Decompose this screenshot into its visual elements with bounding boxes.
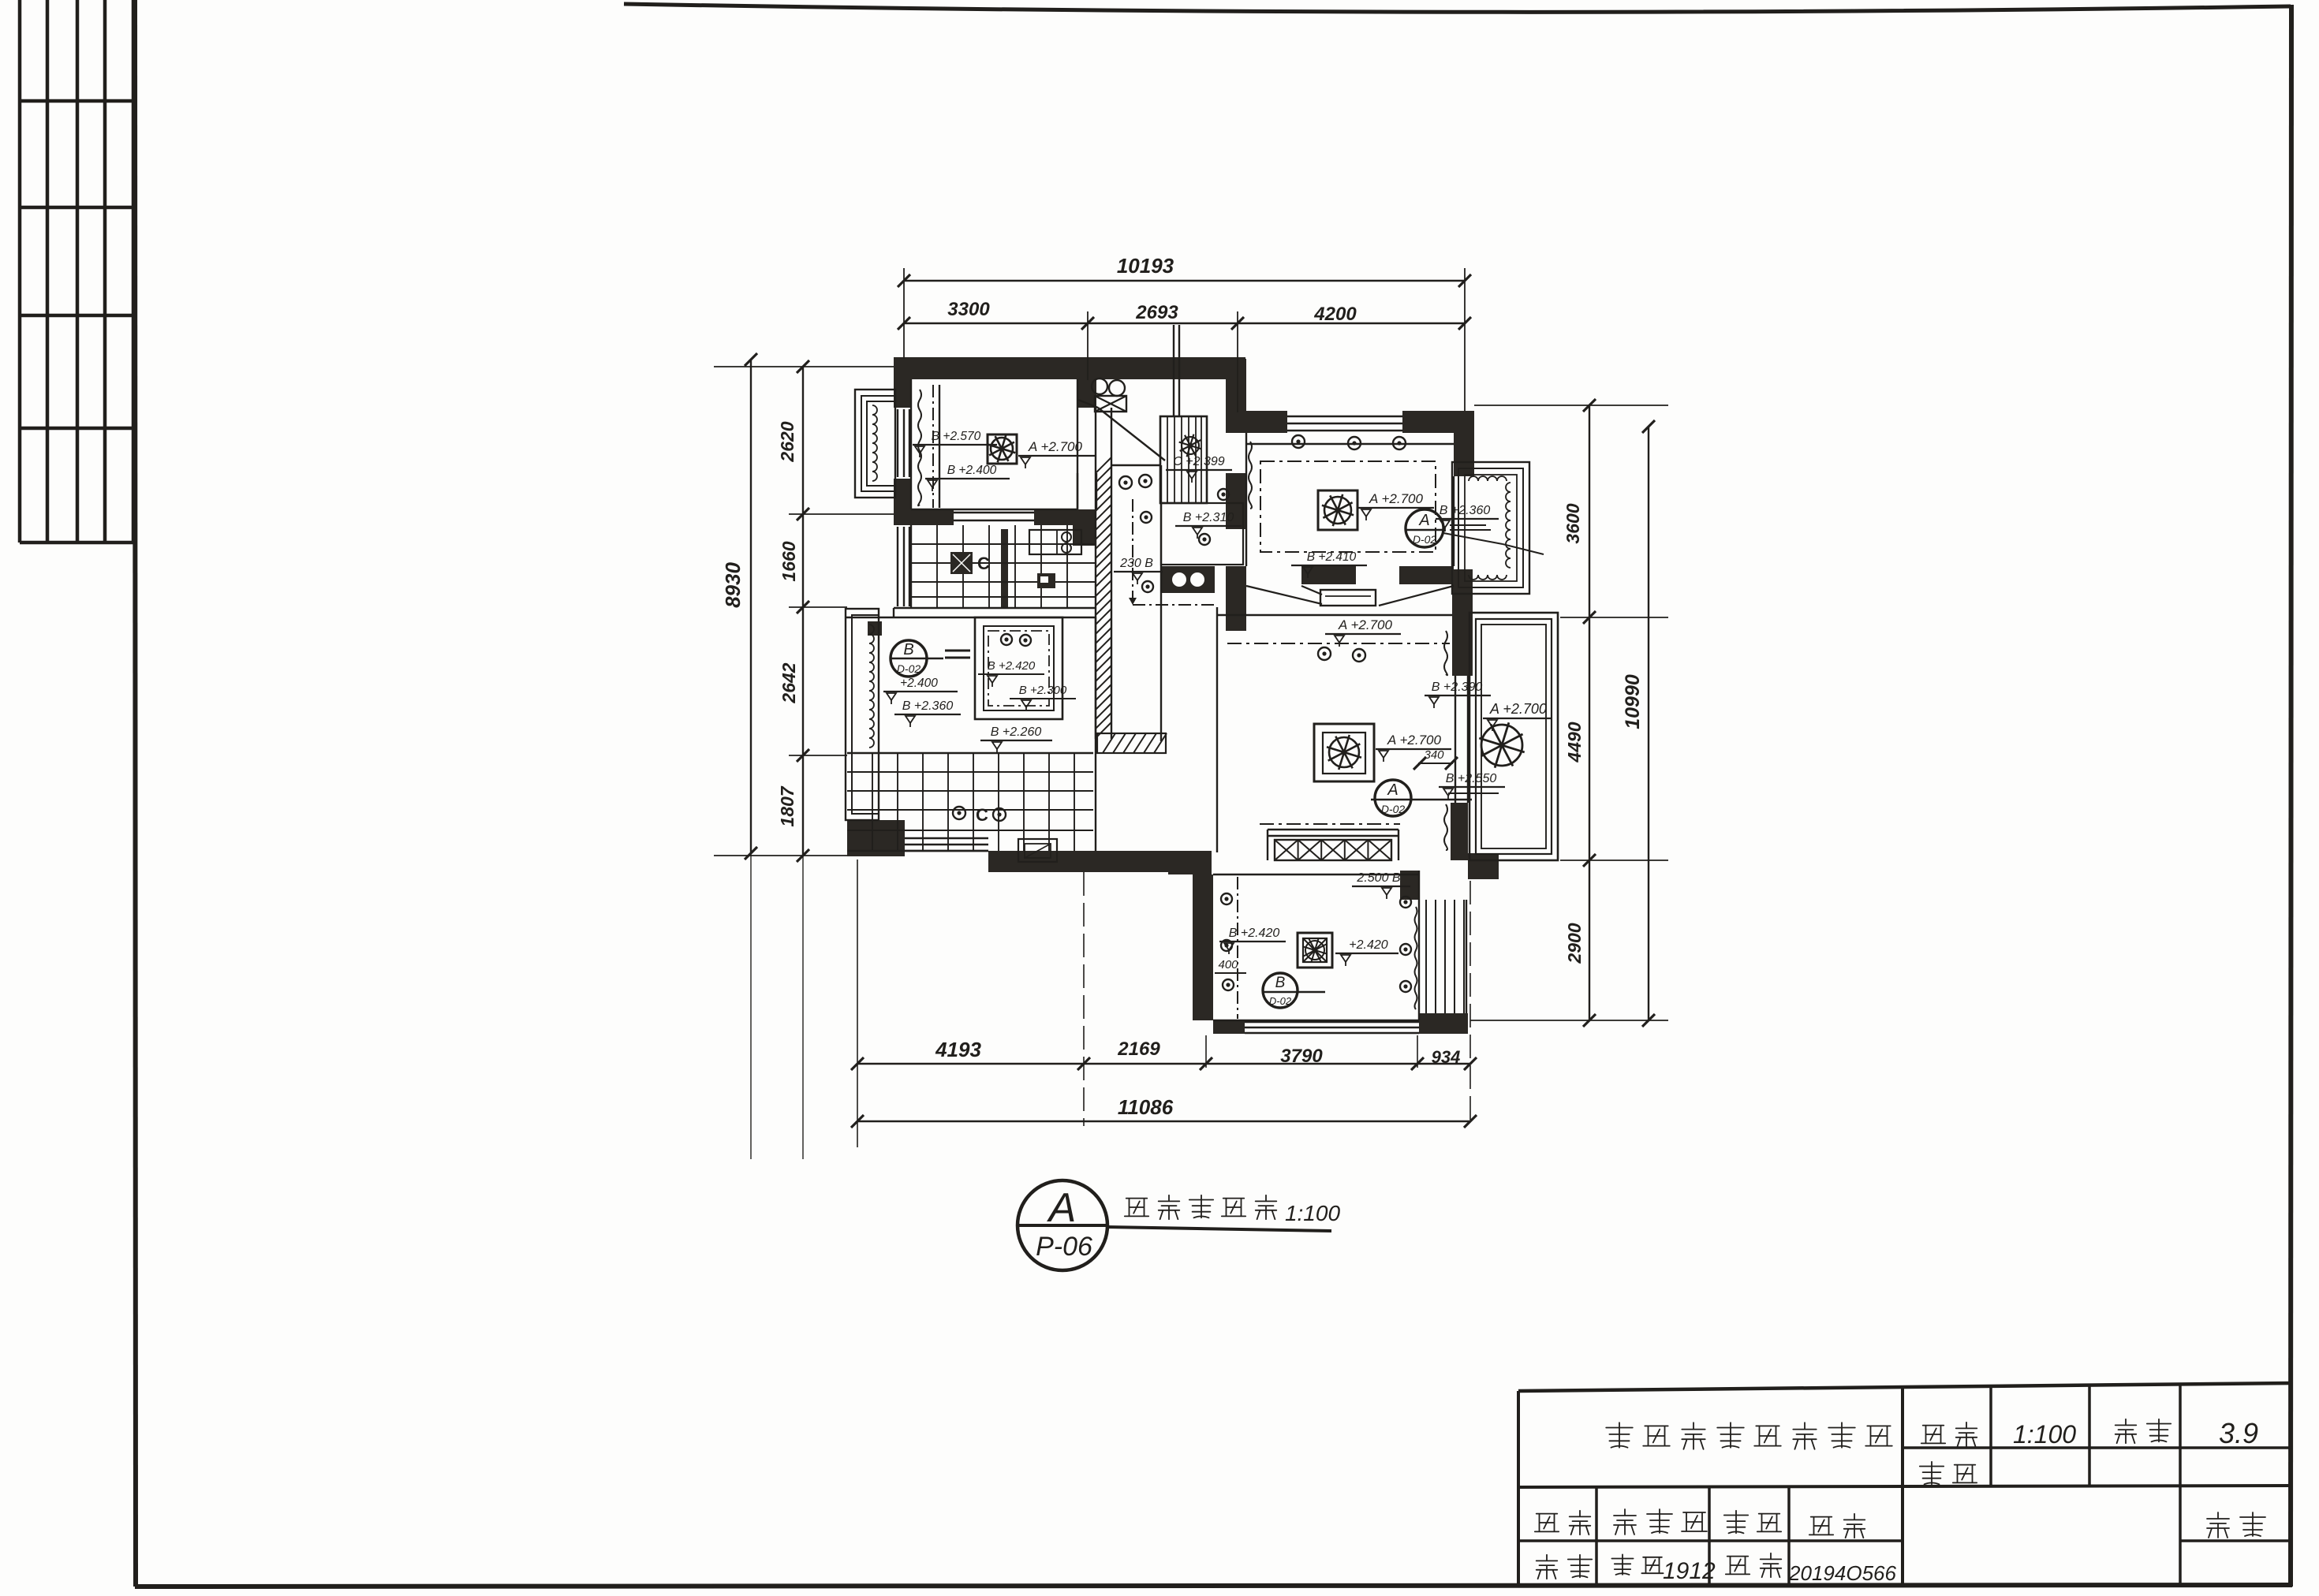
svg-text:C: C <box>976 805 988 825</box>
svg-text:2693: 2693 <box>1135 302 1178 323</box>
svg-text:A +2.700: A +2.700 <box>1387 733 1441 748</box>
svg-text:10193: 10193 <box>1117 254 1174 278</box>
svg-text:10990: 10990 <box>1622 674 1644 729</box>
svg-text:3300: 3300 <box>947 299 990 320</box>
svg-text:1807: 1807 <box>777 785 797 826</box>
svg-text:B +2.420: B +2.420 <box>988 659 1036 673</box>
svg-text:11086: 11086 <box>1118 1095 1174 1119</box>
svg-text:B +2.390: B +2.390 <box>1432 681 1483 694</box>
svg-text:934: 934 <box>1432 1047 1461 1067</box>
svg-text:B +2.400: B +2.400 <box>947 464 997 477</box>
svg-text:B +2.570: B +2.570 <box>932 430 981 443</box>
svg-text:D-02: D-02 <box>1413 533 1437 546</box>
svg-text:B +2.550: B +2.550 <box>1446 772 1497 785</box>
svg-text:D-02: D-02 <box>897 662 921 675</box>
svg-text:1:100: 1:100 <box>2013 1420 2076 1449</box>
svg-text:340: 340 <box>1424 748 1444 762</box>
svg-text:3600: 3600 <box>1563 503 1583 543</box>
svg-text:B +2.410: B +2.410 <box>1307 550 1357 564</box>
svg-text:2169: 2169 <box>1117 1039 1160 1060</box>
svg-text:P-06: P-06 <box>1036 1232 1092 1262</box>
svg-text:1660: 1660 <box>779 541 799 581</box>
svg-text:A +2.700: A +2.700 <box>1028 439 1082 454</box>
svg-text:4193: 4193 <box>935 1038 981 1061</box>
svg-text:2900: 2900 <box>1564 923 1585 964</box>
svg-text:D-02: D-02 <box>1269 995 1292 1007</box>
svg-text:400: 400 <box>1218 958 1238 971</box>
svg-text:4490: 4490 <box>1564 722 1585 763</box>
svg-text:B +2.300: B +2.300 <box>1019 684 1067 697</box>
svg-text:8930: 8930 <box>721 562 745 608</box>
svg-text:1912: 1912 <box>1663 1558 1716 1584</box>
svg-text:B: B <box>903 641 913 658</box>
svg-text:3.9: 3.9 <box>2219 1417 2258 1449</box>
svg-text:A +2.700: A +2.700 <box>1369 491 1423 506</box>
svg-text:B +2.360: B +2.360 <box>902 699 954 713</box>
svg-text:1:100: 1:100 <box>1285 1201 1340 1225</box>
svg-text:A: A <box>1418 512 1429 529</box>
svg-text:C +2.399: C +2.399 <box>1173 455 1224 468</box>
svg-text:+2.400: +2.400 <box>900 677 938 690</box>
svg-text:A: A <box>1387 781 1398 799</box>
svg-text:B +2.420: B +2.420 <box>1229 927 1280 940</box>
svg-text:A +2.700: A +2.700 <box>1489 701 1547 717</box>
svg-text:A: A <box>1047 1185 1077 1231</box>
svg-text:2.500 B: 2.500 B <box>1356 871 1400 885</box>
svg-text:2642: 2642 <box>779 662 799 703</box>
svg-text:B +2.260: B +2.260 <box>991 725 1042 739</box>
svg-text:2620: 2620 <box>777 421 797 462</box>
svg-text:20194O566: 20194O566 <box>1788 1561 1896 1585</box>
svg-text:B: B <box>1275 975 1286 991</box>
svg-text:3790: 3790 <box>1280 1046 1323 1067</box>
svg-text:D-02: D-02 <box>1381 803 1406 815</box>
svg-text:A +2.700: A +2.700 <box>1338 617 1392 632</box>
svg-text:C: C <box>977 554 990 573</box>
svg-text:4200: 4200 <box>1313 304 1357 325</box>
svg-text:+2.420: +2.420 <box>1349 938 1387 952</box>
svg-text:230 B: 230 B <box>1119 557 1153 570</box>
svg-text:B +2.310: B +2.310 <box>1183 511 1234 524</box>
